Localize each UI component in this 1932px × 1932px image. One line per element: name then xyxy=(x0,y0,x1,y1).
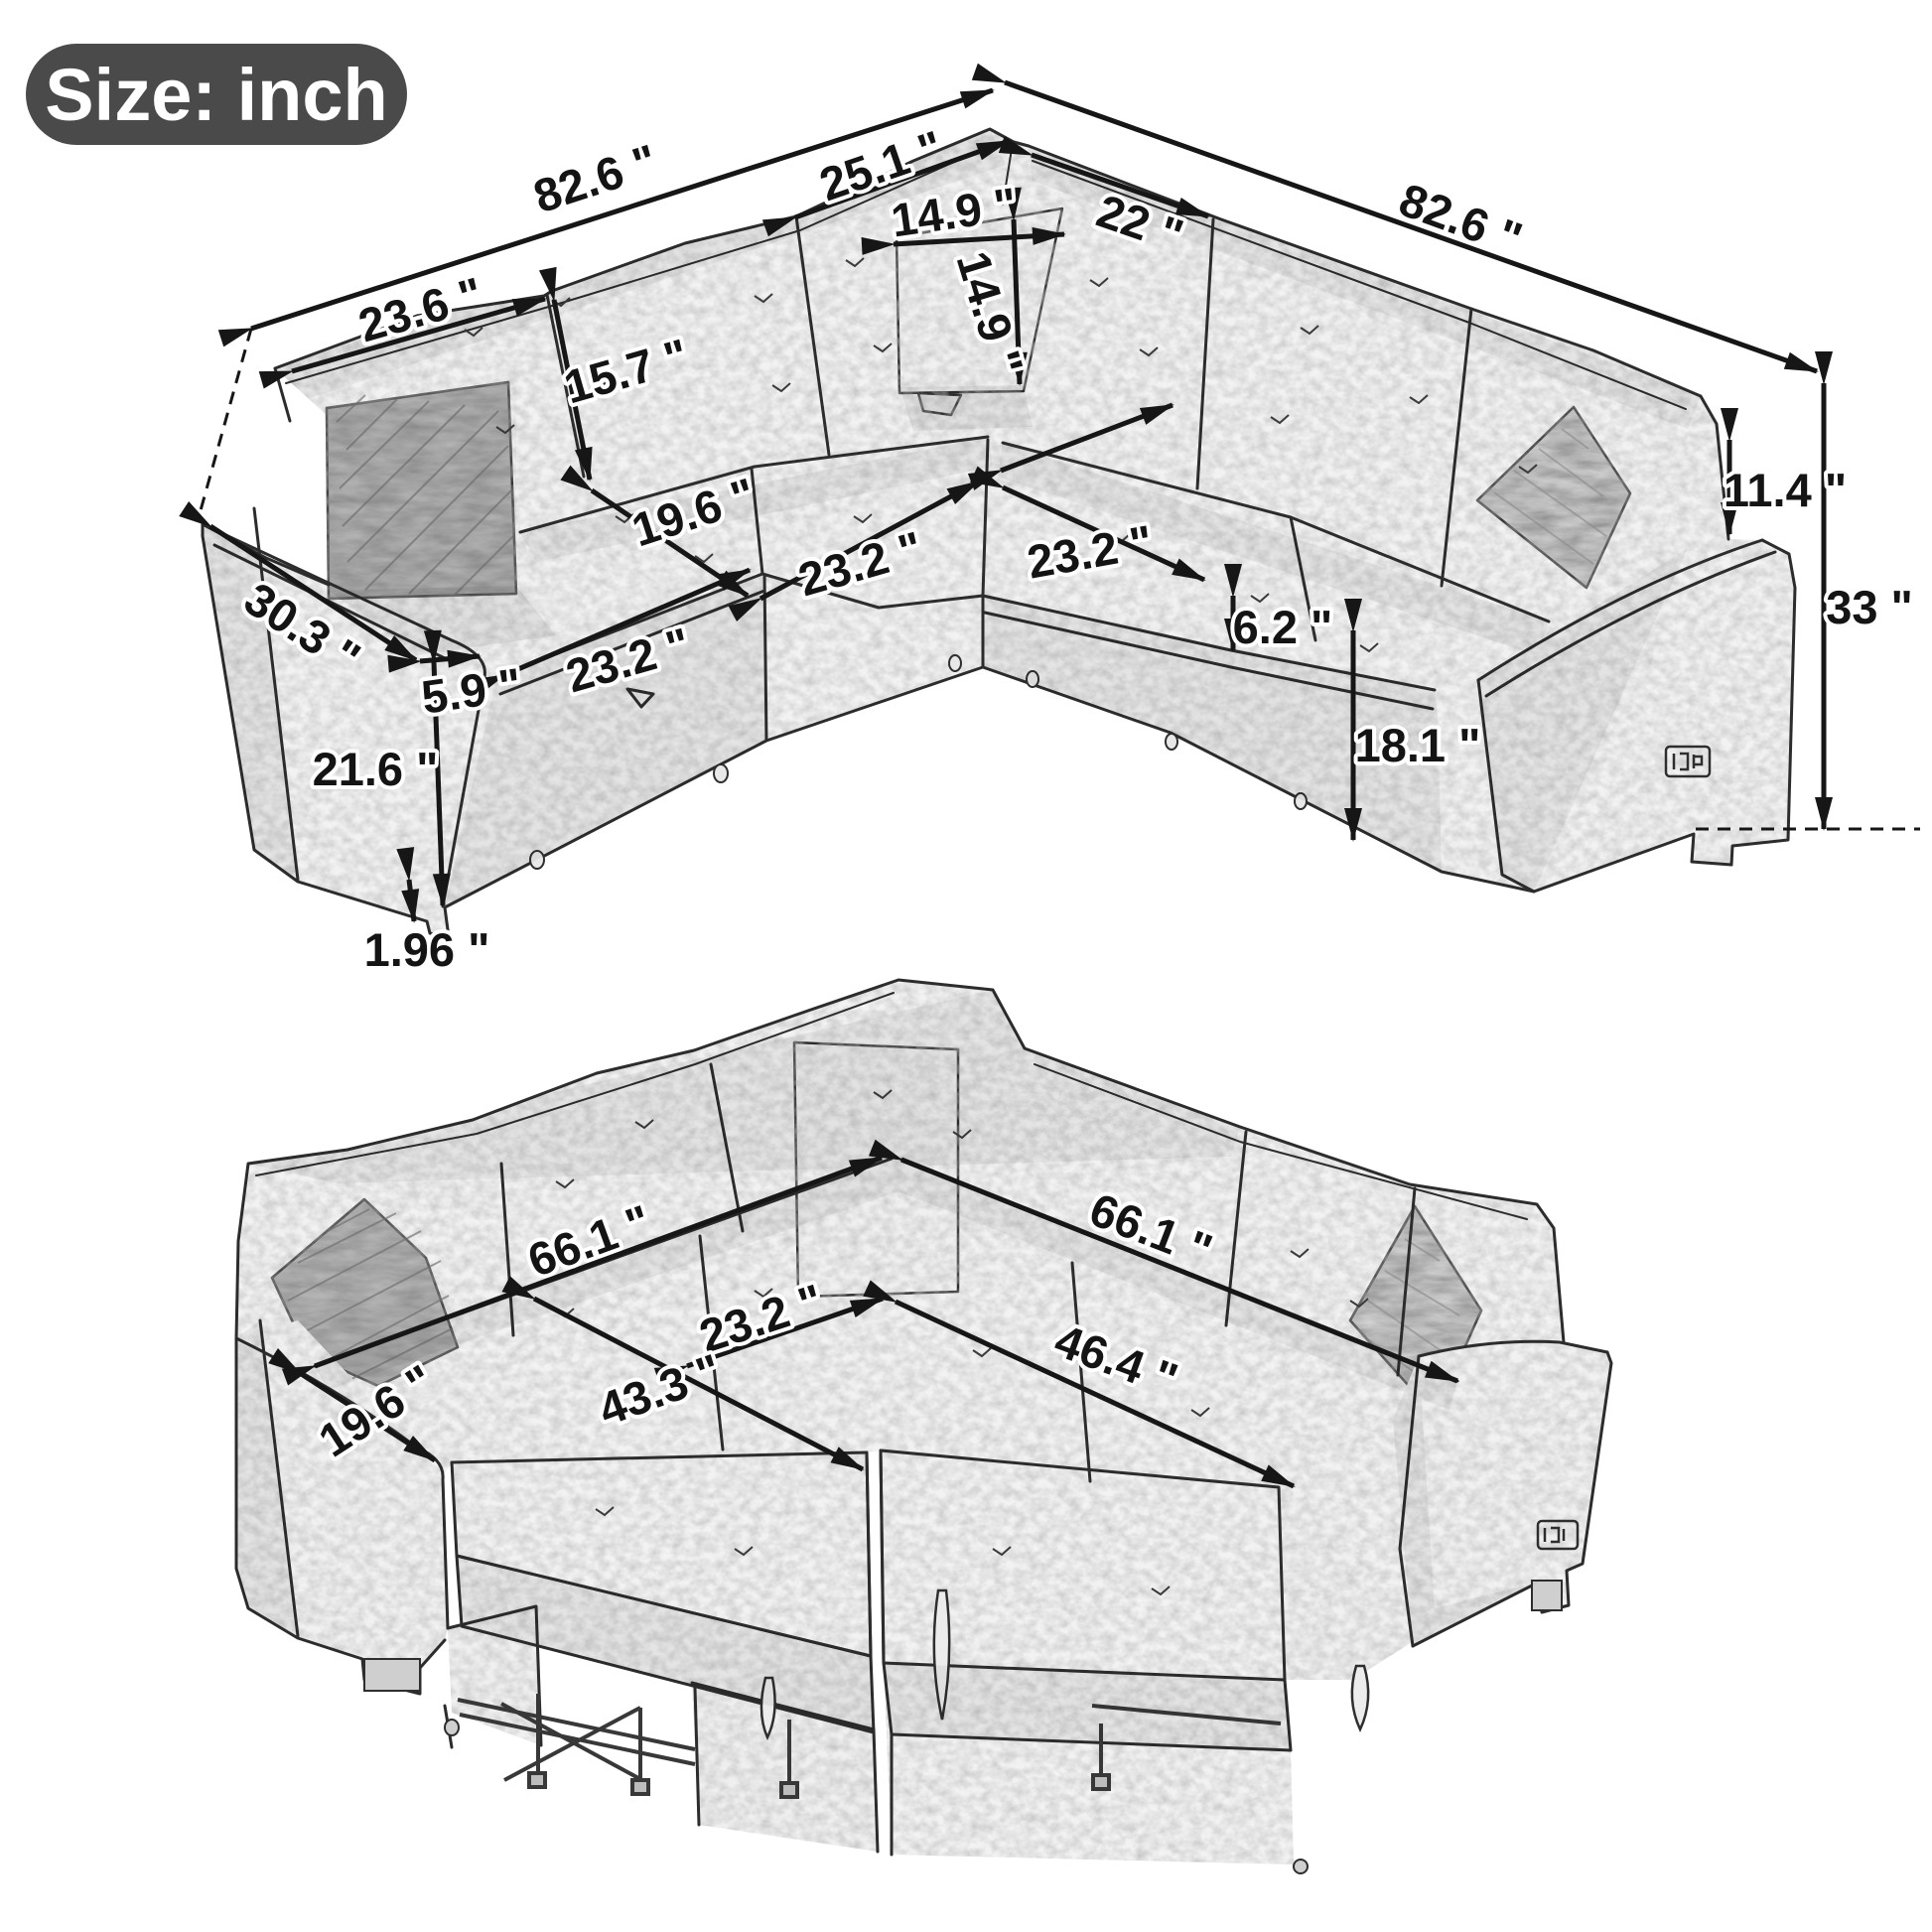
svg-text:18.1 ": 18.1 " xyxy=(1355,719,1481,771)
svg-text:Size: inch: Size: inch xyxy=(45,54,387,136)
svg-text:11.4 ": 11.4 " xyxy=(1724,464,1847,516)
svg-text:6.2 ": 6.2 " xyxy=(1233,601,1333,653)
svg-text:1.96 ": 1.96 " xyxy=(364,923,490,976)
svg-text:21.6 ": 21.6 " xyxy=(313,743,439,795)
svg-text:33 ": 33 " xyxy=(1826,581,1913,633)
